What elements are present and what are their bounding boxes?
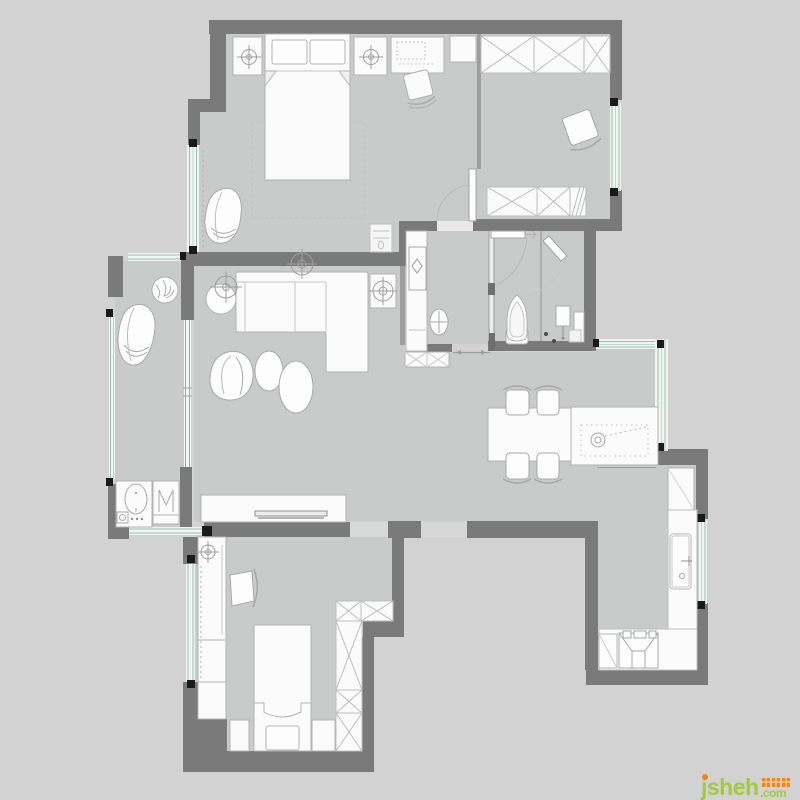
svg-text:.com: .com [760,786,786,800]
svg-text:jsheh: jsheh [700,774,759,800]
